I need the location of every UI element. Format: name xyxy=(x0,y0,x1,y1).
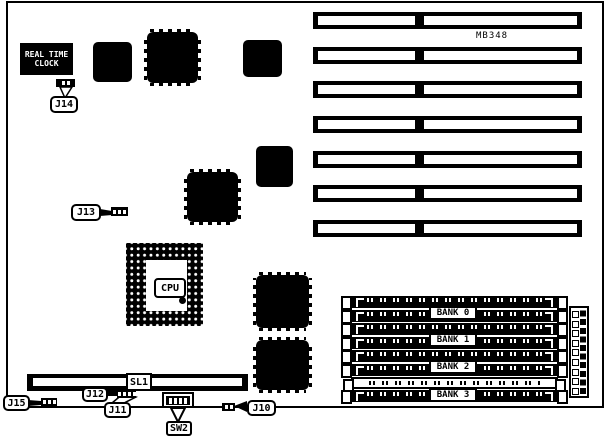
jumper-pins xyxy=(56,79,75,87)
jumper-pins xyxy=(111,207,128,216)
j12-callout: J12 xyxy=(82,387,108,402)
j15-callout: J15 xyxy=(3,395,30,411)
sw2-pointer xyxy=(171,408,185,422)
j10-jumper xyxy=(222,403,235,411)
motherboard-diagram: REAL TIME CLOCK CPU xyxy=(0,0,609,438)
bank-label: BANK 0 xyxy=(429,306,477,320)
jumper-pins xyxy=(41,398,57,406)
j10-pointer xyxy=(234,401,247,412)
j14-callout: J14 xyxy=(50,96,78,113)
bank-label: BANK 1 xyxy=(429,333,477,347)
bank-label: BANK 3 xyxy=(429,388,477,402)
j15-jumper xyxy=(41,398,57,406)
j13-callout: J13 xyxy=(71,204,101,221)
sw2-callout: SW2 xyxy=(166,421,192,436)
bank-label: BANK 2 xyxy=(429,360,477,374)
jumper-pins xyxy=(222,403,235,411)
j11-callout: J11 xyxy=(104,402,131,418)
j13-jumper xyxy=(111,207,128,216)
sl1-label: SL1 xyxy=(126,373,152,391)
j14-jumper xyxy=(56,79,75,87)
j10-callout: J10 xyxy=(247,400,276,416)
